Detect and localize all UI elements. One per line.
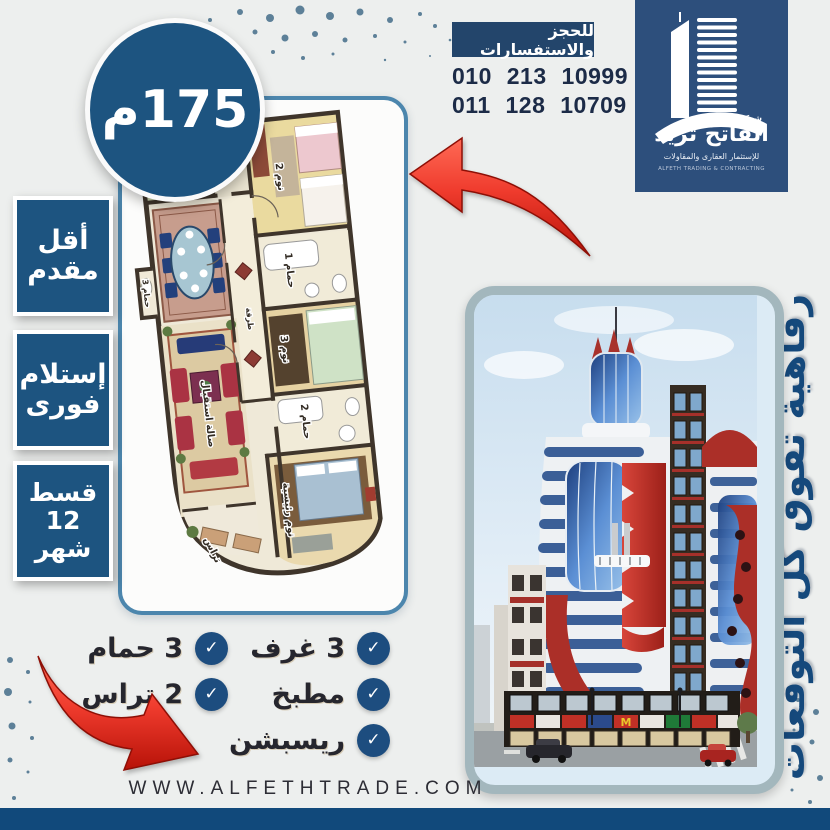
check-icon: ✓ xyxy=(357,678,390,711)
check-icon: ✓ xyxy=(357,632,390,665)
feature-rooms: 3 غرف ✓ xyxy=(250,631,390,665)
check-icon: ✓ xyxy=(357,724,390,757)
phone-numbers: 010 213 10999 011 128 10709 xyxy=(452,62,628,120)
badge-lowest-downpayment: أقل مقدم xyxy=(13,196,113,316)
feature-kitchen: مطبخ ✓ xyxy=(272,677,391,711)
badge-line: أقل xyxy=(37,226,88,256)
building-drawing: M xyxy=(474,295,757,767)
logo-company-name: الفاتح تريد xyxy=(635,122,788,147)
badge-line: إستلام xyxy=(19,360,106,390)
feature-label: مطبخ xyxy=(272,679,346,710)
badge-line: 12 xyxy=(46,507,81,535)
logo-buildings-icon xyxy=(635,0,788,192)
arrow-to-website-icon xyxy=(18,650,203,795)
badge-line: قسط xyxy=(29,479,98,507)
logo-subtitle: للإستثمار العقارى والمقاولات xyxy=(635,152,788,161)
badge-line: فورى xyxy=(26,390,101,420)
area-value: 175م xyxy=(102,80,249,140)
arrow-to-floorplan-icon xyxy=(398,128,598,268)
logo-subtitle-en: ALFETH TRADING & CONTRACTING xyxy=(635,166,788,172)
badge-line: مقدم xyxy=(27,256,99,286)
svg-text:M: M xyxy=(621,716,632,729)
company-logo: شركة الفاتح تريد للإستثمار العقارى والمق… xyxy=(635,0,788,192)
flyer-canvas: مطبخ نوم 2 حمام 1 نوم 3 حمام 2 نوم رئيسي… xyxy=(0,0,830,830)
building-image: M xyxy=(465,286,784,794)
badge-immediate-delivery: إستلام فورى xyxy=(13,330,113,450)
phone-number-1[interactable]: 010 213 10999 xyxy=(452,62,628,91)
feature-label: ريسبشن xyxy=(229,725,345,756)
feature-reception: ريسبشن ✓ xyxy=(229,723,390,757)
feature-label: 3 غرف xyxy=(250,633,345,664)
bottom-bar xyxy=(0,808,830,830)
badge-line: شهر xyxy=(35,535,92,563)
badge-installments: قسط 12 شهر xyxy=(13,461,113,581)
area-badge: 175م xyxy=(85,18,265,202)
phone-number-2[interactable]: 011 128 10709 xyxy=(452,91,628,120)
booking-banner: للحجز والاستفسارات xyxy=(452,22,594,57)
